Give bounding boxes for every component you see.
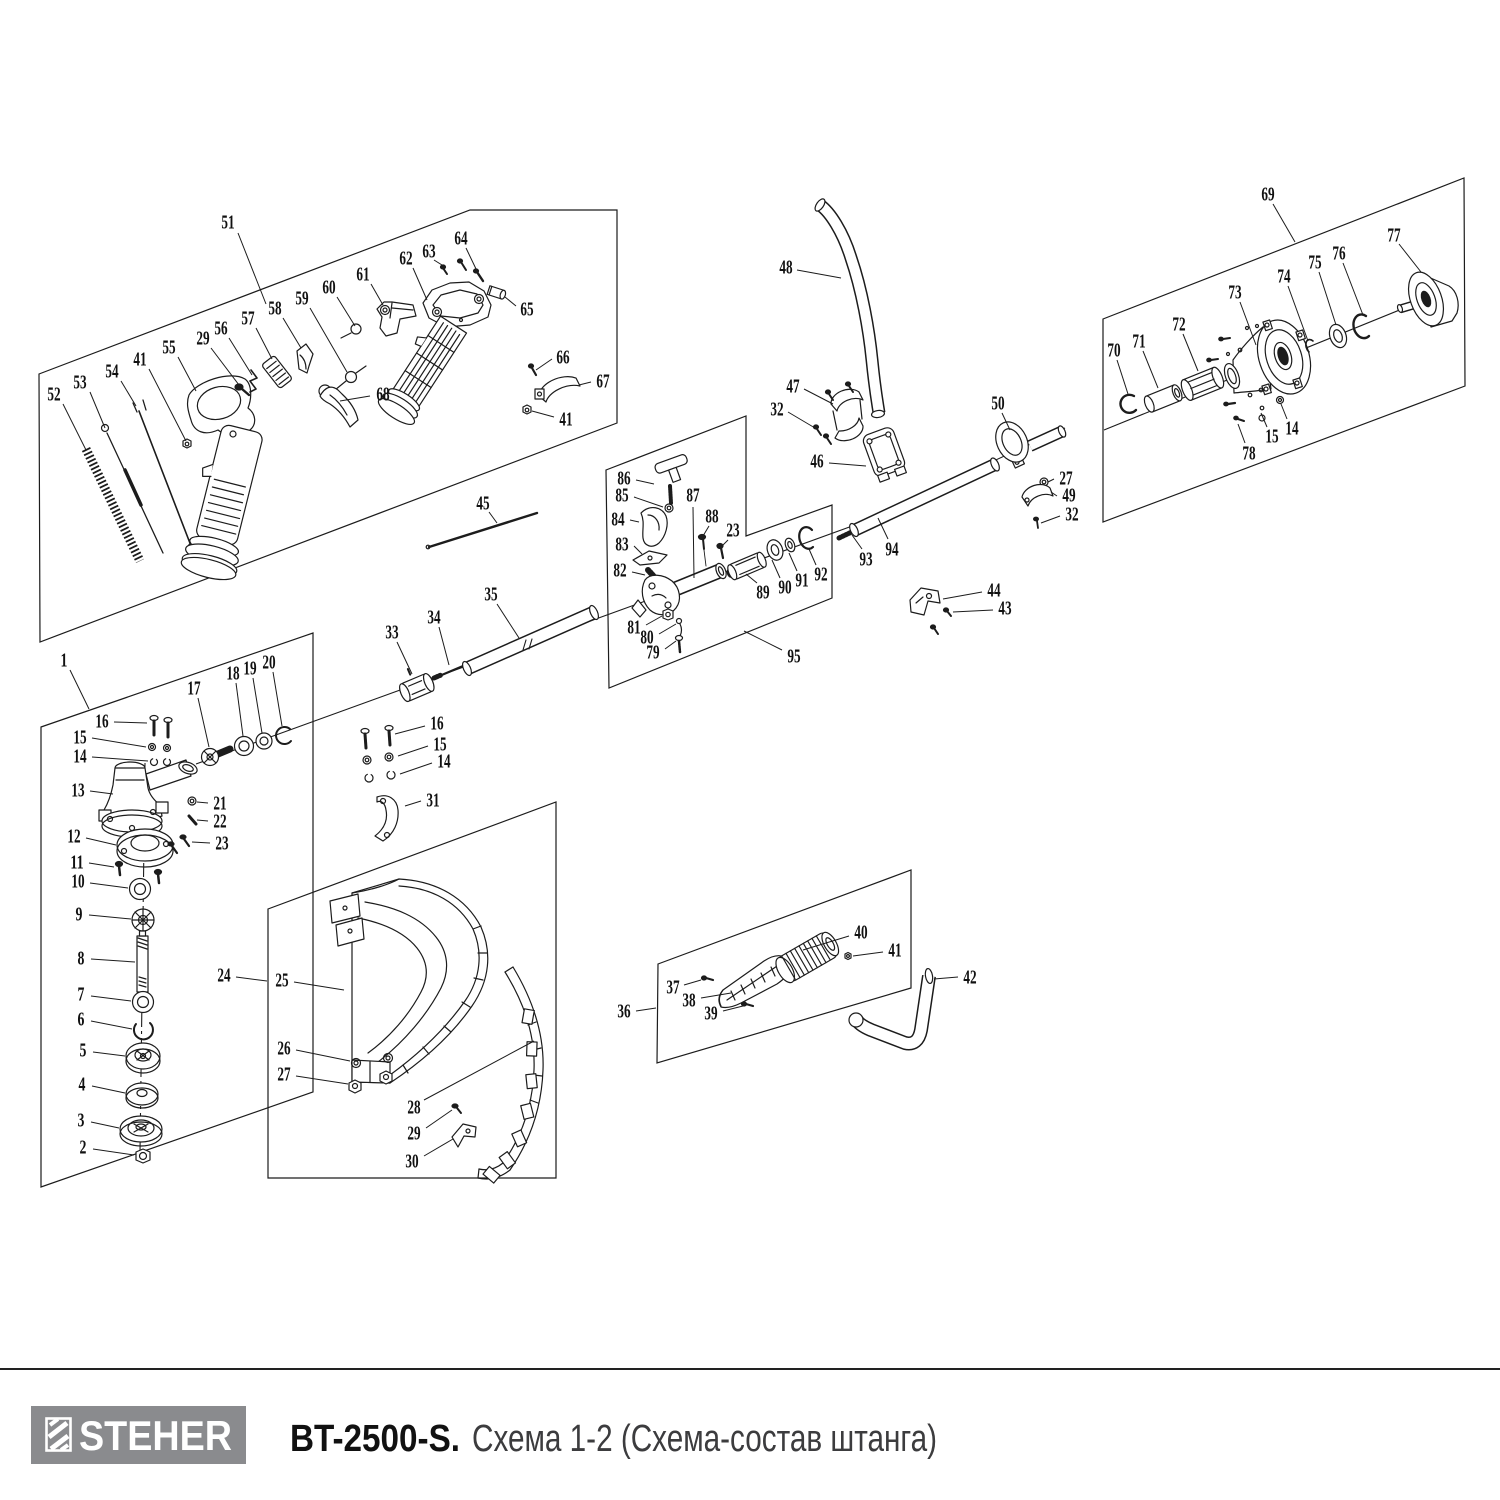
svg-text:24: 24 [217, 965, 230, 987]
svg-text:16: 16 [95, 711, 108, 733]
svg-text:26: 26 [277, 1038, 290, 1060]
svg-text:61: 61 [356, 264, 369, 286]
svg-text:78: 78 [1242, 443, 1255, 465]
svg-text:23: 23 [215, 833, 228, 855]
svg-text:66: 66 [556, 347, 569, 369]
svg-text:46: 46 [810, 451, 823, 473]
svg-text:93: 93 [859, 549, 872, 571]
svg-text:83: 83 [615, 534, 628, 556]
svg-text:34: 34 [427, 607, 440, 629]
svg-text:12: 12 [67, 826, 80, 848]
svg-text:70: 70 [1107, 340, 1120, 362]
svg-text:94: 94 [885, 539, 898, 561]
svg-text:89: 89 [756, 582, 769, 604]
svg-text:13: 13 [71, 780, 84, 802]
svg-text:BT-2500-S.: BT-2500-S. [290, 1418, 460, 1460]
svg-text:6: 6 [78, 1009, 85, 1031]
svg-text:5: 5 [80, 1040, 87, 1062]
svg-text:33: 33 [385, 622, 398, 644]
svg-text:62: 62 [399, 248, 412, 270]
svg-text:2: 2 [80, 1137, 87, 1159]
svg-text:47: 47 [786, 376, 799, 398]
svg-text:41: 41 [888, 940, 901, 962]
svg-text:88: 88 [705, 506, 718, 528]
svg-text:64: 64 [454, 228, 467, 250]
svg-text:59: 59 [295, 288, 308, 310]
svg-text:67: 67 [596, 371, 609, 393]
svg-text:14: 14 [1285, 418, 1298, 440]
svg-text:48: 48 [779, 257, 792, 279]
svg-text:28: 28 [407, 1097, 420, 1119]
svg-text:22: 22 [213, 811, 226, 833]
svg-text:81: 81 [627, 617, 640, 639]
svg-text:19: 19 [243, 658, 256, 680]
svg-text:57: 57 [241, 308, 254, 330]
svg-text:23: 23 [726, 520, 739, 542]
svg-text:1: 1 [61, 650, 68, 672]
svg-text:71: 71 [1132, 331, 1145, 353]
svg-text:Схема 1-2 (Схема-состав штанга: Схема 1-2 (Схема-состав штанга) [472, 1418, 937, 1460]
svg-text:72: 72 [1172, 314, 1185, 336]
svg-text:3: 3 [78, 1110, 85, 1132]
svg-text:82: 82 [613, 560, 626, 582]
svg-text:53: 53 [73, 372, 86, 394]
svg-text:17: 17 [187, 678, 200, 700]
svg-text:55: 55 [162, 337, 175, 359]
svg-text:73: 73 [1228, 282, 1241, 304]
svg-text:29: 29 [407, 1123, 420, 1145]
svg-text:54: 54 [105, 361, 118, 383]
svg-text:76: 76 [1332, 243, 1345, 265]
svg-text:29: 29 [196, 328, 209, 350]
svg-text:8: 8 [78, 948, 85, 970]
svg-text:10: 10 [71, 871, 84, 893]
svg-text:30: 30 [405, 1151, 418, 1173]
svg-text:18: 18 [226, 663, 239, 685]
svg-text:77: 77 [1387, 225, 1400, 247]
svg-text:40: 40 [854, 922, 867, 944]
svg-text:25: 25 [275, 970, 288, 992]
svg-text:15: 15 [1265, 426, 1278, 448]
svg-text:STEHER: STEHER [79, 1412, 232, 1459]
svg-text:42: 42 [963, 967, 976, 989]
svg-text:50: 50 [991, 393, 1004, 415]
svg-text:45: 45 [476, 493, 489, 515]
svg-text:35: 35 [484, 584, 497, 606]
svg-text:14: 14 [437, 751, 450, 773]
svg-text:14: 14 [73, 746, 86, 768]
svg-text:68: 68 [376, 384, 389, 406]
svg-text:43: 43 [998, 598, 1011, 620]
svg-text:9: 9 [76, 904, 83, 926]
svg-text:65: 65 [520, 299, 533, 321]
svg-text:87: 87 [686, 485, 699, 507]
svg-text:7: 7 [78, 984, 85, 1006]
svg-text:75: 75 [1308, 252, 1321, 274]
svg-text:60: 60 [322, 277, 335, 299]
svg-text:95: 95 [787, 646, 800, 668]
svg-text:31: 31 [426, 790, 439, 812]
svg-text:36: 36 [617, 1001, 630, 1023]
svg-text:51: 51 [221, 212, 234, 234]
svg-text:37: 37 [666, 977, 679, 999]
svg-text:41: 41 [559, 409, 572, 431]
svg-text:16: 16 [430, 713, 443, 735]
svg-text:85: 85 [615, 485, 628, 507]
svg-text:39: 39 [704, 1003, 717, 1025]
svg-text:56: 56 [214, 318, 227, 340]
svg-text:90: 90 [778, 577, 791, 599]
svg-text:58: 58 [268, 298, 281, 320]
svg-text:32: 32 [770, 399, 783, 421]
svg-text:52: 52 [47, 384, 60, 406]
svg-text:41: 41 [133, 349, 146, 371]
svg-text:69: 69 [1261, 184, 1274, 206]
svg-text:63: 63 [422, 241, 435, 263]
svg-text:38: 38 [682, 990, 695, 1012]
svg-text:20: 20 [262, 652, 275, 674]
svg-text:27: 27 [277, 1064, 290, 1086]
svg-text:91: 91 [795, 570, 808, 592]
svg-text:79: 79 [646, 642, 659, 664]
svg-text:4: 4 [79, 1074, 86, 1096]
svg-text:84: 84 [611, 509, 624, 531]
svg-text:74: 74 [1277, 266, 1290, 288]
svg-text:92: 92 [814, 564, 827, 586]
svg-text:32: 32 [1065, 504, 1078, 526]
